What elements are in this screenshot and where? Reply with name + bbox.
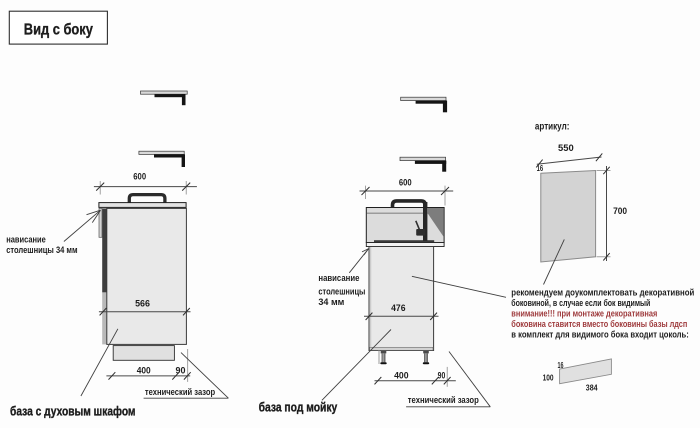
svg-text:700: 700 xyxy=(613,206,627,217)
svg-text:база с духовым шкафом: база с духовым шкафом xyxy=(10,404,136,418)
svg-text:боковина ставится вместо боков: боковина ставится вместо боковины базы л… xyxy=(511,319,687,330)
svg-text:в комплект для видимого бока в: в комплект для видимого бока входит цоко… xyxy=(511,329,689,340)
svg-text:база под мойку: база под мойку xyxy=(259,400,338,414)
svg-text:100: 100 xyxy=(543,372,554,382)
svg-text:артикул:: артикул: xyxy=(535,122,570,133)
svg-text:90: 90 xyxy=(438,370,446,381)
svg-text:нависание: нависание xyxy=(6,234,46,245)
svg-text:столешницы: столешницы xyxy=(318,287,365,298)
svg-text:Вид с боку: Вид с боку xyxy=(24,22,93,39)
svg-text:нависание: нависание xyxy=(318,273,359,284)
svg-text:рекомендуем доукомплектовать д: рекомендуем доукомплектовать декоративно… xyxy=(511,288,694,299)
svg-text:внимание!!! при монтаже декора: внимание!!! при монтаже декоративная xyxy=(511,309,657,320)
svg-text:384: 384 xyxy=(586,383,598,393)
svg-text:550: 550 xyxy=(558,143,574,154)
svg-text:400: 400 xyxy=(394,370,409,381)
svg-text:34 мм: 34 мм xyxy=(318,297,344,308)
svg-text:16: 16 xyxy=(558,360,564,370)
svg-text:476: 476 xyxy=(391,303,405,314)
svg-text:566: 566 xyxy=(135,298,150,309)
svg-text:600: 600 xyxy=(399,177,412,188)
svg-text:600: 600 xyxy=(133,171,146,182)
svg-text:16: 16 xyxy=(537,163,544,173)
svg-text:столешницы 34 мм: столешницы 34 мм xyxy=(6,245,77,256)
svg-text:боковиной, в случае если бок в: боковиной, в случае если бок видимый xyxy=(511,298,650,309)
svg-text:90: 90 xyxy=(176,365,186,376)
svg-text:технический зазор: технический зазор xyxy=(145,387,215,398)
svg-text:технический зазор: технический зазор xyxy=(408,395,479,406)
svg-text:400: 400 xyxy=(137,365,151,376)
